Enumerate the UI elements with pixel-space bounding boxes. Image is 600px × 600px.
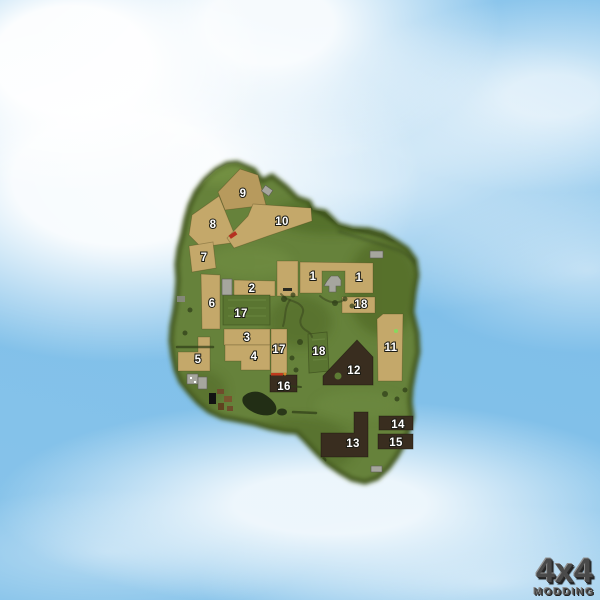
coast-structure-west: [177, 296, 185, 302]
map-screenshot: 98107112618173171811541216131415 4x4 MOD…: [0, 0, 600, 600]
field-label-1: 1: [310, 271, 317, 283]
field-label-8: 8: [210, 219, 217, 231]
field-label-15: 15: [389, 437, 403, 449]
dock-structure-south: [371, 466, 382, 472]
field-label-4: 4: [251, 351, 258, 363]
field-label-3: 3: [244, 332, 251, 344]
island-map-svg: 98107112618173171811541216131415: [0, 0, 600, 600]
field-label-6: 6: [209, 298, 216, 310]
field-label-7: 7: [201, 252, 208, 264]
brown-vehicle-2: [224, 396, 232, 402]
orange-dot-field-16: [284, 373, 287, 376]
watermark-title: 4x4: [534, 553, 595, 588]
green-dot-field-11: [394, 329, 398, 333]
watermark-logo: 4x4 MODDING: [534, 554, 595, 598]
field-label-10: 10: [275, 216, 289, 228]
pond-small: [277, 409, 287, 416]
field-label-12: 12: [347, 365, 361, 377]
field-label-18: 18: [354, 299, 368, 311]
building-detail-dot: [194, 381, 196, 383]
field-label-11: 11: [385, 342, 398, 354]
brown-vehicle-4: [227, 406, 233, 411]
farmyard-machine: [283, 288, 292, 291]
red-marker-field-16: [271, 373, 283, 376]
field-label-14: 14: [391, 419, 405, 431]
building-detail-dot: [190, 377, 192, 379]
shed-northeast: [370, 251, 383, 258]
field-label-17: 17: [272, 344, 286, 356]
field-label-16: 16: [277, 381, 291, 393]
field-label-17: 17: [234, 308, 248, 320]
field-label-1: 1: [356, 272, 363, 284]
tree-in-field-12: [335, 373, 342, 380]
field-label-2: 2: [249, 283, 256, 295]
brown-vehicle-3: [218, 403, 224, 410]
field-label-18: 18: [312, 346, 326, 358]
dark-structure: [209, 393, 216, 404]
brown-vehicle-1: [217, 389, 224, 394]
field-label-13: 13: [346, 438, 360, 450]
field-label-9: 9: [240, 188, 247, 200]
field-label-5: 5: [195, 354, 202, 366]
farm-building-west-1: [187, 374, 198, 384]
barn-building: [222, 279, 232, 295]
farm-building-west-2: [198, 377, 207, 389]
